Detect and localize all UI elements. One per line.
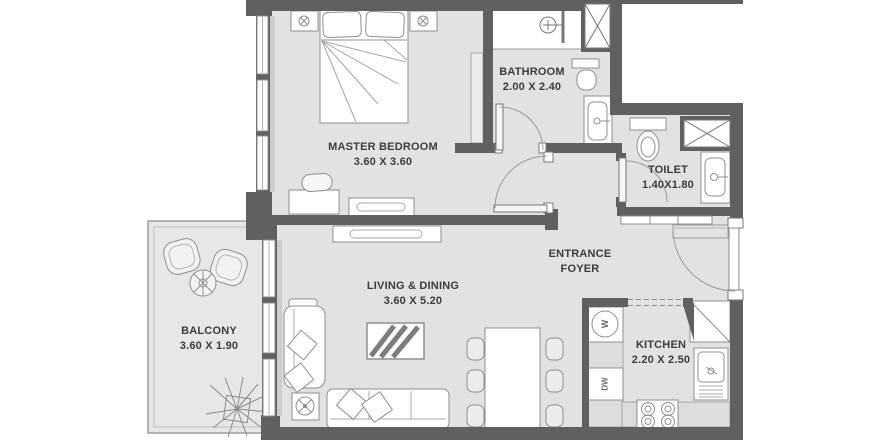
- room-dims: 2.00 X 2.40: [499, 80, 565, 95]
- balcony-table-icon: [190, 270, 216, 296]
- room-dims: 1.40X1.80: [642, 178, 694, 193]
- room-name: LIVING & DINING: [367, 279, 459, 294]
- room-label-bathroom: BATHROOM 2.00 X 2.40: [499, 65, 565, 95]
- stove-icon: [637, 400, 678, 429]
- room-label-toilet: TOILET 1.40X1.80: [642, 163, 694, 193]
- room-label-balcony: BALCONY 3.60 X 1.90: [180, 324, 238, 354]
- room-name: TOILET: [642, 163, 694, 178]
- room-dims: 3.60 X 3.60: [328, 155, 438, 170]
- rug-icon: [367, 323, 424, 359]
- dresser-icon: [349, 198, 414, 216]
- room-label-entrance-foyer: ENTRANCE FOYER: [549, 247, 612, 277]
- wardrobe-icon: [471, 53, 483, 143]
- room-label-master-bedroom: MASTER BEDROOM 3.60 X 3.60: [328, 140, 438, 170]
- armchair-icon: [284, 299, 325, 392]
- insulation-strip-living: [277, 240, 282, 416]
- room-dims: 2.20 X 2.50: [632, 353, 690, 368]
- dining-table-icon: [485, 328, 540, 433]
- shaft-toilet: [680, 116, 734, 151]
- room-dims: 3.60 X 5.20: [367, 294, 459, 309]
- dishwasher-label: DW: [601, 377, 610, 391]
- bedroom-window: [257, 16, 268, 190]
- bathroom-basin-icon: [584, 96, 612, 147]
- room-name: BALCONY: [180, 324, 238, 339]
- room-name: KITCHEN: [632, 338, 690, 353]
- room-name: ENTRANCE: [549, 247, 612, 262]
- nightstand-left-icon: [291, 11, 318, 31]
- kitchen-sink-icon: [694, 348, 728, 400]
- counter-left-low: [588, 400, 623, 427]
- sofa-icon: [327, 389, 449, 429]
- floor-plan: W DW MASTER BEDROOM 3.60 X 3.60 BATHROOM…: [0, 0, 890, 440]
- washer-label: W: [600, 319, 610, 328]
- shaft-bathroom: [581, 0, 614, 52]
- room-name-line2: FOYER: [549, 262, 612, 277]
- room-name: BATHROOM: [499, 65, 565, 80]
- counter-left-mid: [588, 342, 623, 368]
- nightstand-right-icon: [410, 11, 437, 31]
- room-name: MASTER BEDROOM: [328, 140, 438, 155]
- room-dims: 3.60 X 1.90: [180, 339, 238, 354]
- living-window: [263, 240, 275, 416]
- bed-icon: [320, 8, 408, 123]
- insulation-strip-bedroom: [270, 16, 275, 192]
- toilet-basin-icon: [701, 152, 730, 203]
- floor-plan-drawing: W DW: [0, 0, 890, 440]
- room-label-living-dining: LIVING & DINING 3.60 X 5.20: [367, 279, 459, 309]
- tv-console-icon: [333, 226, 441, 242]
- side-table-icon: [292, 393, 319, 420]
- room-label-kitchen: KITCHEN 2.20 X 2.50: [632, 338, 690, 368]
